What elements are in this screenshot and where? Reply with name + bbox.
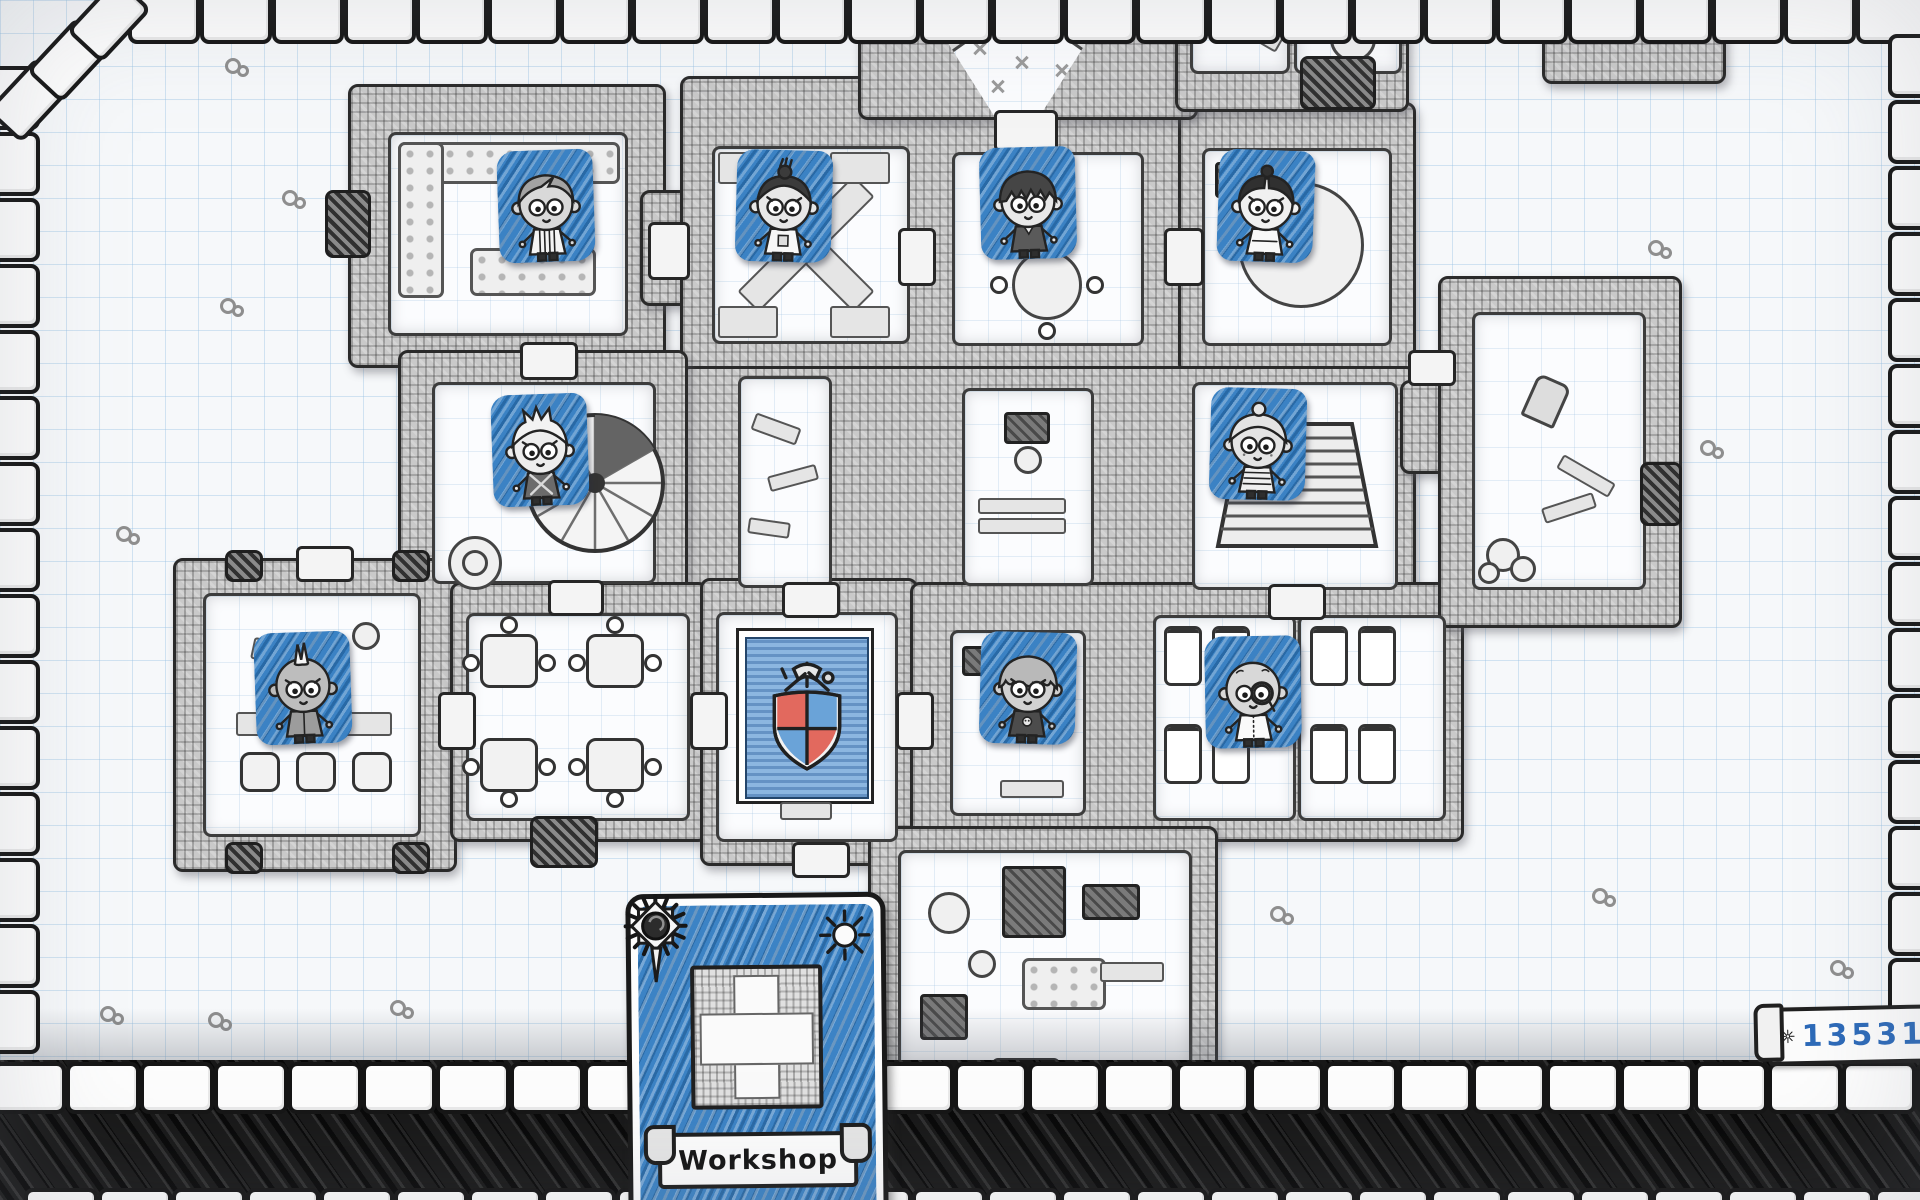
card-thumbnail (690, 964, 824, 1109)
hero-tile-hero-4[interactable] (1216, 148, 1316, 263)
workshop-card[interactable]: Workshop (625, 892, 888, 1200)
hero-tile-hero-3[interactable] (979, 146, 1078, 260)
hero-portrait-side-part-icon (498, 154, 594, 263)
hero-tile-hero-6[interactable] (1209, 387, 1308, 501)
hero-portrait-mohawk-icon (255, 636, 351, 745)
hero-portrait-scalloped-bob-icon (981, 637, 1076, 745)
hero-portrait-topknot-icon (737, 155, 832, 263)
hero-tile-hero-5[interactable] (490, 392, 590, 507)
hero-portrait-spiky-white-icon (492, 398, 588, 507)
sunburst-icon (1780, 1016, 1796, 1056)
hero-portrait-shaggy-icon (981, 152, 1076, 260)
guild-map-screen: 13531 (0, 0, 1920, 1200)
gold-counter: 13531 (1767, 1004, 1920, 1066)
hero-tile-hero-8[interactable] (979, 631, 1078, 745)
hero-tile-hero-7[interactable] (253, 630, 353, 745)
hero-portrait-bald-monocle-icon (1206, 641, 1300, 749)
hero-tiles-layer (0, 0, 1920, 1200)
hero-tile-hero-2[interactable] (735, 149, 834, 263)
gold-amount: 13531 (1801, 1016, 1920, 1054)
hero-tile-hero-9[interactable] (1204, 635, 1302, 749)
dark-sun-icon (613, 886, 698, 987)
card-title-ribbon: Workshop (658, 1131, 859, 1189)
hero-tile-hero-1[interactable] (496, 148, 596, 263)
card-face: Workshop (637, 904, 876, 1200)
hero-portrait-middle-bun-icon (1218, 154, 1314, 263)
card-title: Workshop (678, 1144, 838, 1177)
hero-portrait-granny-bun-icon (1211, 393, 1306, 501)
light-sun-icon (817, 908, 872, 963)
